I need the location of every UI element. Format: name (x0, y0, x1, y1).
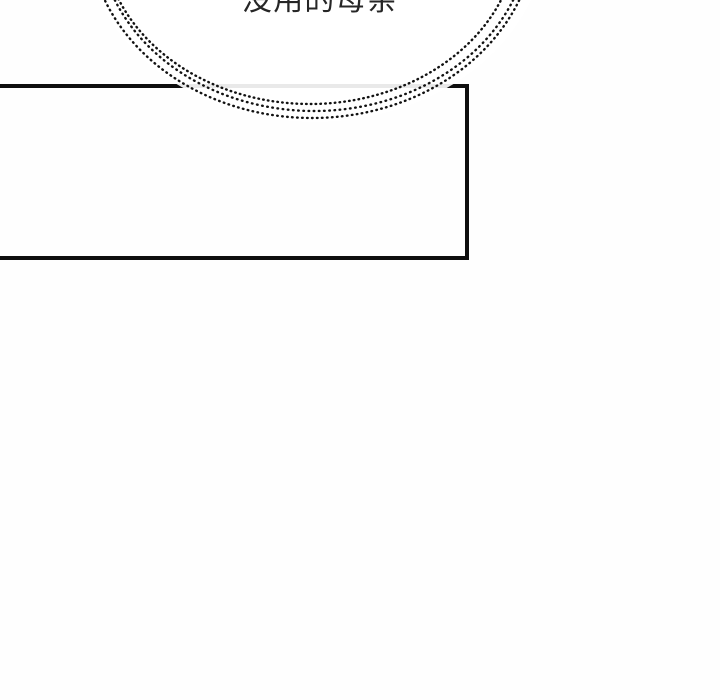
comic-panel-page: 没用的母亲 (0, 0, 720, 700)
panel-frame (0, 86, 467, 258)
panel-artwork (0, 0, 720, 700)
speech-bubble-text: 没用的母亲 (0, 0, 640, 16)
